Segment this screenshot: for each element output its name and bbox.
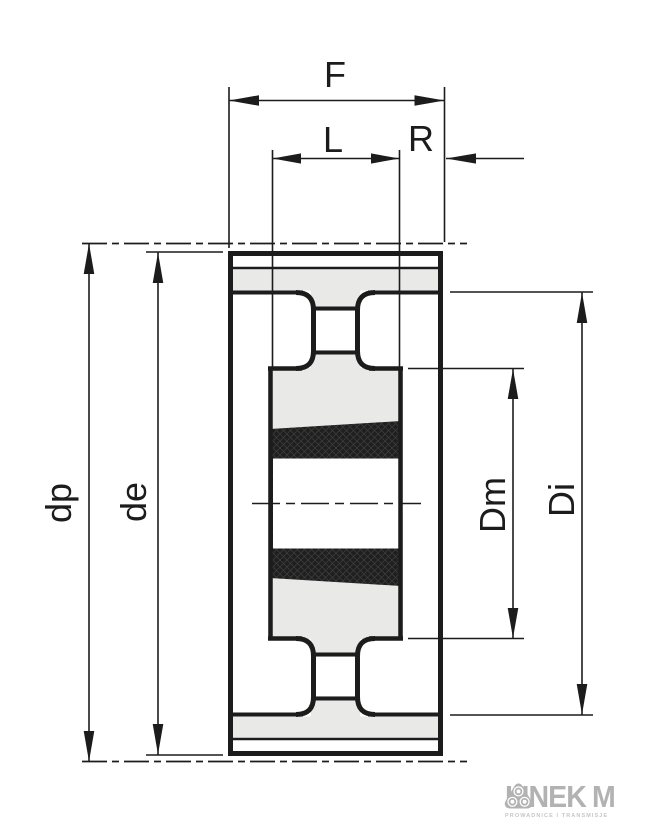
arrowhead-left (446, 153, 476, 163)
rim-section-bottom (233, 717, 438, 738)
arrowhead-left (229, 95, 259, 106)
arrowhead-down (577, 684, 588, 715)
logo-text-suffix: M (592, 782, 615, 812)
arrowhead-up (153, 253, 164, 284)
label-Dm: Dm (472, 477, 513, 533)
technical-drawing-page: F L R dp de Dm (0, 0, 654, 833)
dimension-outside-diameter: de (113, 252, 223, 755)
web-window-top (316, 311, 355, 350)
arrowhead-up (84, 244, 95, 275)
arrowhead-up (577, 293, 588, 324)
arrowhead-down (153, 724, 164, 755)
arrowhead-down (508, 608, 519, 638)
arrowhead-right (371, 153, 400, 163)
web-window-bottom (316, 657, 355, 696)
dimension-hub-protrusion: R (408, 118, 524, 164)
label-Di: Di (541, 483, 582, 517)
dimension-pitch-diameter: dp (38, 244, 94, 762)
arrowhead-right (415, 95, 445, 106)
arrowhead-down (84, 731, 95, 762)
label-R: R (408, 118, 434, 159)
label-dp: dp (38, 483, 79, 523)
arrowhead-left (273, 153, 302, 163)
label-L: L (323, 119, 343, 160)
label-F: F (324, 54, 346, 95)
pulley-section-drawing: F L R dp de Dm (0, 0, 654, 833)
logo-wordmark: LINEK M (505, 782, 651, 812)
pulley-body (231, 254, 441, 754)
label-de: de (113, 482, 154, 522)
rim-section-top (233, 270, 438, 291)
linekom-logo: LINEK M PROWADNICE I TRANSMISJE (505, 782, 651, 819)
arrowhead-up (508, 369, 519, 399)
three-rollers-icon (503, 782, 534, 812)
